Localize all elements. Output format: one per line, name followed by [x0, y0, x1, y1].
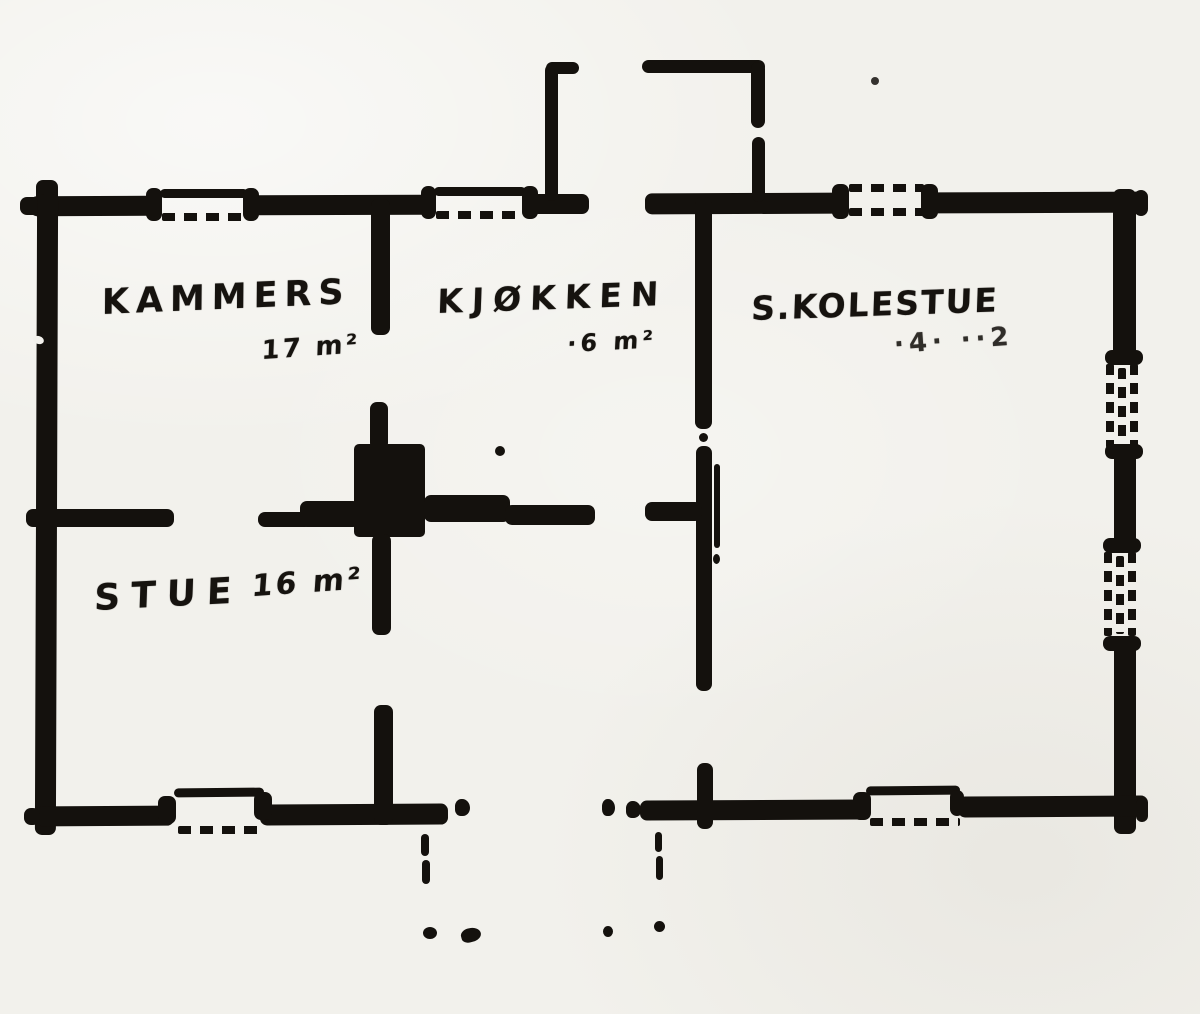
window-right-lower-line-right: [1128, 552, 1136, 636]
window-right-lower-line-left: [1104, 552, 1112, 636]
chimney-block: [354, 444, 425, 537]
wall-top-segment-4: [645, 193, 845, 215]
wall-right-segment-2: [1114, 450, 1136, 548]
window-skolestue-top-jamb-right: [921, 184, 938, 219]
wall-top-segment-2: [246, 195, 430, 216]
wall-bottom-segment-3: [640, 799, 868, 820]
wall-hall-stue-upper: [372, 534, 391, 635]
window-stue-jamb-left: [158, 796, 176, 824]
wall-chimney-neck: [370, 402, 388, 450]
room-label-kammers: KAMMERS: [102, 272, 351, 323]
room-label-skolestue: S.KOLESTUE: [751, 280, 1000, 328]
wall-right-segment-1: [1113, 189, 1136, 358]
window-right-upper-line-left: [1106, 364, 1114, 448]
step-dot-1: [423, 927, 437, 939]
room-area-kammers: 17 m²: [261, 329, 361, 366]
window-skolestue-bottom-top-line: [866, 786, 960, 796]
room-label-stue: STUE: [94, 570, 244, 619]
porch-right-arm: [642, 60, 765, 73]
wall-central-middle: [696, 446, 712, 691]
window-skolestue-top-dash-upper: [849, 184, 924, 192]
wall-central-lower: [697, 763, 713, 829]
wall-hall-stue-lower: [374, 705, 393, 825]
window-right-lower-jamb-bottom: [1103, 636, 1141, 651]
door-post-tick-right-a: [655, 832, 662, 852]
wall-central-upper: [695, 197, 712, 429]
wall-central-joint-dot: [699, 433, 708, 442]
window-skolestue-bottom-dash-line: [870, 818, 960, 826]
window-right-lower-line-mid: [1116, 556, 1124, 634]
window-stue-jamb-right: [254, 792, 272, 820]
window-skolestue-top-dash-lower: [849, 208, 927, 216]
door-leaf-line: [714, 464, 720, 548]
window-right-upper-line-right: [1130, 364, 1138, 448]
step-dot-2: [460, 926, 483, 944]
porch-left-wall: [545, 64, 558, 201]
window-skolestue-bottom-jamb-right: [950, 790, 964, 816]
room-label-kjokken: KJØKKEN: [437, 274, 668, 321]
porch-right-wall-upper: [751, 62, 765, 128]
ink-speck-2: [871, 77, 879, 85]
wall-middle-segment-2b: [300, 501, 360, 527]
window-kammers-dash-line: [162, 213, 248, 221]
wall-middle-segment-1: [26, 509, 174, 527]
window-right-lower-jamb-top: [1103, 538, 1141, 553]
window-kjokken-top-line: [434, 187, 526, 196]
window-stue-top-line: [174, 788, 264, 798]
window-right-upper-jamb-top: [1105, 350, 1143, 365]
corner-top-right-stub: [1134, 190, 1148, 216]
porch-right-wall-lower: [752, 137, 765, 202]
window-kjokken-jamb-right: [522, 186, 538, 219]
wall-bottom-segment-4: [958, 796, 1148, 818]
window-kammers-top-line: [160, 189, 248, 198]
wall-middle-segment-3: [424, 495, 510, 522]
ink-speck-1: [495, 446, 505, 456]
window-kammers-jamb-right: [243, 188, 259, 221]
door-jamb-mark-left: [455, 799, 470, 816]
step-dot-4: [654, 921, 665, 932]
floor-plan-canvas: KAMMERS 17 m² KJØKKEN ·6 m² S.KOLESTUE ·…: [0, 0, 1200, 1014]
porch-left-arm: [546, 62, 579, 74]
step-dot-3: [603, 926, 613, 937]
door-jamb-mark-right-1: [602, 799, 615, 816]
window-kjokken-dash-line: [436, 211, 524, 219]
wall-middle-segment-3b: [505, 505, 595, 525]
room-area-kjokken: ·6 m²: [567, 325, 658, 358]
door-post-tick-right-b: [656, 856, 663, 880]
window-right-upper-jamb-bottom: [1105, 444, 1143, 459]
corner-bottom-left-arm: [24, 808, 40, 825]
door-leaf-dot: [713, 554, 720, 564]
room-area-stue: 16 m²: [251, 561, 365, 604]
door-jamb-mark-right-2: [626, 801, 641, 818]
window-skolestue-bottom-jamb-left: [853, 792, 871, 820]
door-post-tick-left-a: [421, 834, 429, 856]
room-area-skolestue: ·4· ··2: [893, 322, 1015, 360]
wall-bottom-segment-1: [36, 806, 174, 827]
window-stue-dash-line: [178, 826, 266, 834]
wall-bottom-segment-2: [260, 804, 448, 826]
wall-middle-stub: [645, 502, 702, 521]
corner-bottom-right-stub: [1136, 798, 1148, 822]
wall-top-segment-3: [531, 194, 589, 214]
wall-kammers-kjokken-upper: [371, 199, 390, 335]
window-skolestue-top-jamb-left: [832, 184, 849, 219]
door-post-tick-left-b: [422, 860, 430, 884]
window-right-upper-line-mid: [1118, 368, 1126, 446]
